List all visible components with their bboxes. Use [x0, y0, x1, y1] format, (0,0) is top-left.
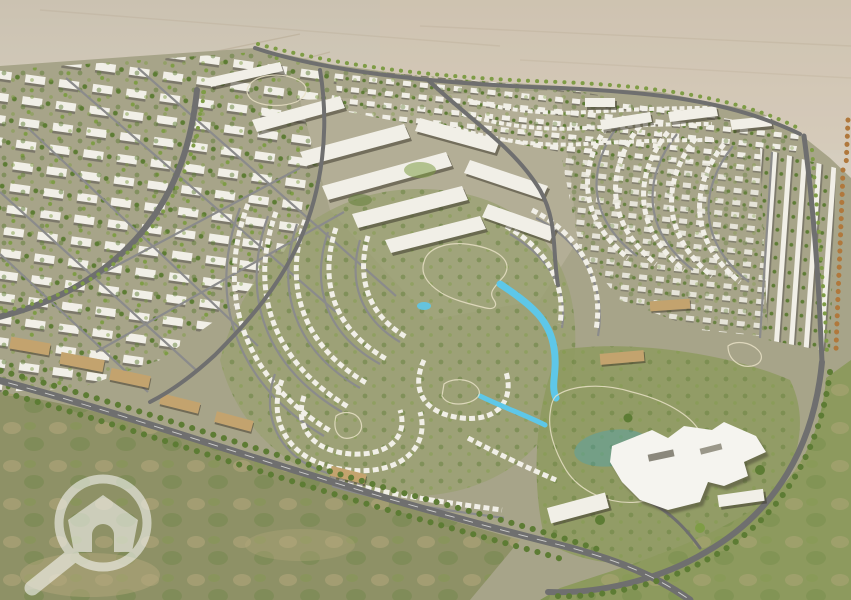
aerial-render-image: Aerial masterplan rendering of a desert …: [0, 0, 851, 600]
tiny-pool: [417, 302, 431, 310]
masterplan-scene: Aerial masterplan rendering of a desert …: [0, 0, 851, 600]
